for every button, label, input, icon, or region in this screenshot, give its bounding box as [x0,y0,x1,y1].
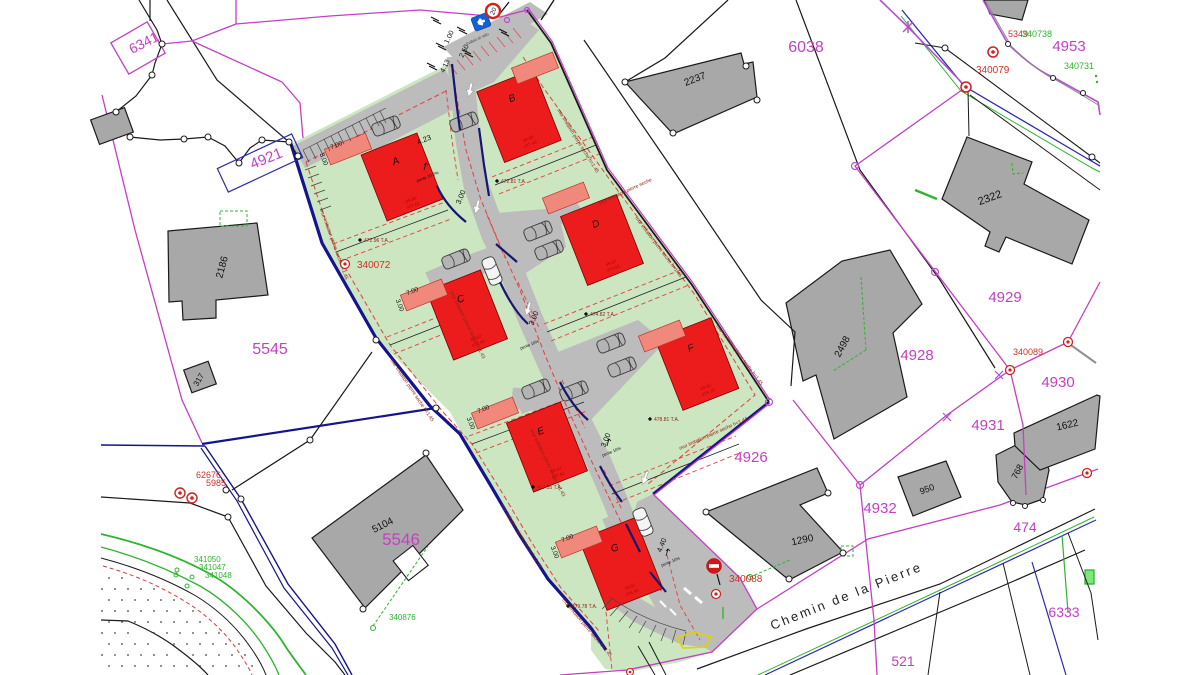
svg-text:521: 521 [891,653,915,669]
svg-text:341048: 341048 [205,571,232,580]
svg-text:4931: 4931 [971,417,1004,434]
svg-text:474.82 T.A.: 474.82 T.A. [590,312,615,318]
svg-text:472.81 T.A.: 472.81 T.A. [501,179,526,185]
svg-text:4928: 4928 [900,347,933,364]
svg-text:4930: 4930 [1041,374,1074,391]
svg-text:4929: 4929 [988,289,1021,306]
svg-text:340738: 340738 [1022,29,1052,39]
svg-text:6333: 6333 [1048,604,1079,620]
svg-text:5545: 5545 [252,341,288,358]
svg-text:472.96 T.A.: 472.96 T.A. [364,238,389,244]
svg-text:340089: 340089 [1013,347,1043,357]
svg-text:6038: 6038 [788,39,824,56]
svg-text:474: 474 [1013,519,1037,535]
svg-text:4953: 4953 [1052,38,1085,55]
svg-text:478.81 T.A.: 478.81 T.A. [654,417,679,423]
svg-text:340731: 340731 [1064,61,1094,71]
svg-text:5985: 5985 [206,478,226,488]
svg-text:340088: 340088 [729,574,763,585]
svg-text:340876: 340876 [389,613,416,622]
svg-text:340079: 340079 [976,65,1010,76]
svg-text:340072: 340072 [357,260,391,271]
svg-text:4926: 4926 [734,449,767,466]
svg-text:4932: 4932 [863,500,896,517]
svg-text:5546: 5546 [382,530,420,549]
